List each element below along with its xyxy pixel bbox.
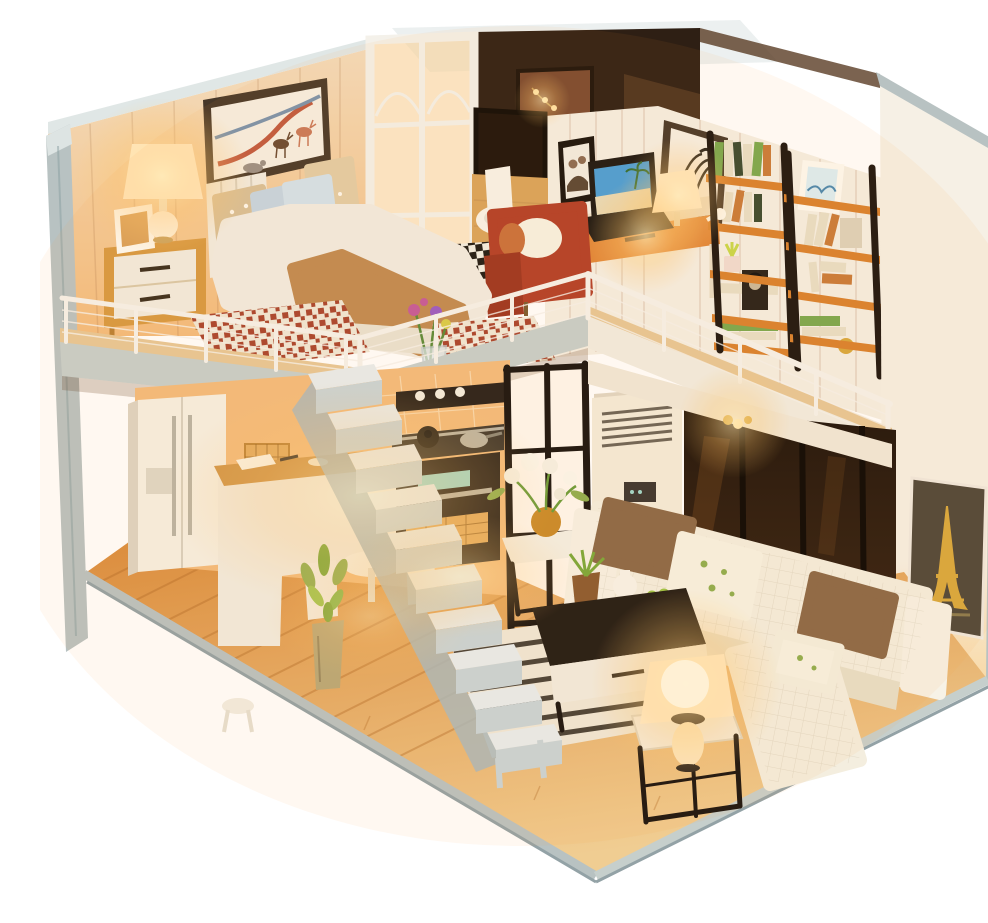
dollhouse-product-photo	[40, 16, 988, 907]
dollhouse-scene	[40, 16, 988, 907]
warm-veil	[40, 26, 988, 846]
warm-lighting-glows	[40, 26, 988, 846]
